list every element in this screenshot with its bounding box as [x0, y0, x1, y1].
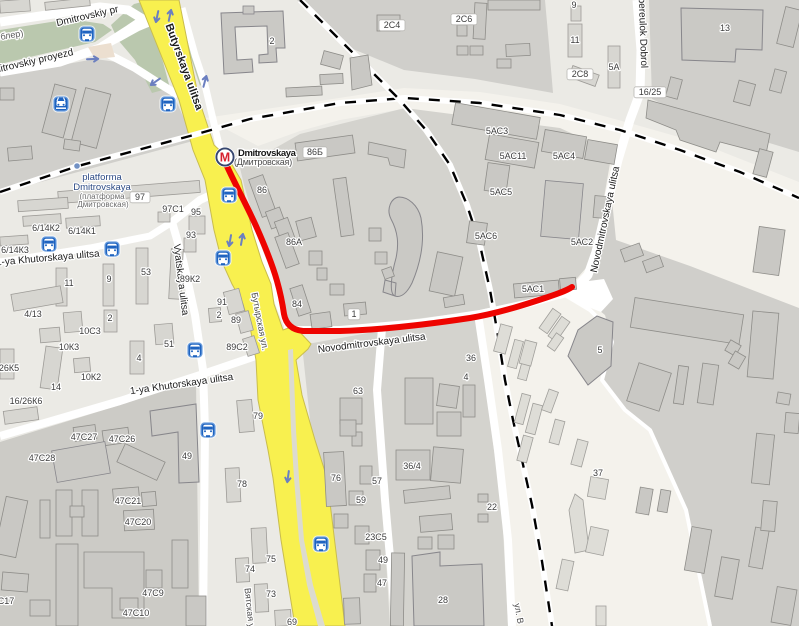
svg-text:97: 97 — [135, 192, 145, 202]
svg-text:47С26: 47С26 — [109, 434, 136, 444]
svg-text:47С27: 47С27 — [71, 432, 98, 442]
svg-text:4: 4 — [463, 372, 468, 382]
svg-text:53: 53 — [141, 267, 151, 277]
svg-text:28: 28 — [438, 595, 448, 605]
svg-text:47С9: 47С9 — [142, 588, 164, 598]
svg-text:47С21: 47С21 — [115, 496, 142, 506]
svg-text:76: 76 — [331, 473, 341, 483]
svg-text:47: 47 — [377, 578, 387, 588]
svg-text:2: 2 — [269, 36, 274, 46]
svg-text:5АС1: 5АС1 — [522, 284, 544, 294]
svg-text:22: 22 — [487, 502, 497, 512]
svg-text:M: M — [220, 150, 230, 164]
svg-text:16/26К6: 16/26К6 — [10, 396, 43, 406]
svg-text:89С2: 89С2 — [226, 342, 248, 352]
svg-text:79: 79 — [253, 411, 263, 421]
svg-text:47С10: 47С10 — [123, 608, 150, 618]
svg-text:57: 57 — [372, 476, 382, 486]
svg-text:9: 9 — [571, 0, 576, 10]
svg-text:86Б: 86Б — [307, 147, 323, 157]
svg-text:5АС2: 5АС2 — [571, 237, 593, 247]
svg-text:93: 93 — [186, 230, 196, 240]
svg-text:47С28: 47С28 — [29, 453, 56, 463]
svg-text:69: 69 — [287, 617, 297, 626]
svg-text:51: 51 — [164, 339, 174, 349]
svg-text:5АС11: 5АС11 — [500, 151, 527, 161]
svg-text:6/14К3: 6/14К3 — [1, 245, 29, 255]
svg-text:97С1: 97С1 — [162, 204, 184, 214]
svg-text:5АС3: 5АС3 — [486, 126, 508, 136]
svg-text:86: 86 — [257, 185, 267, 195]
svg-text:5: 5 — [597, 345, 602, 355]
svg-text:5АС6: 5АС6 — [475, 231, 497, 241]
svg-text:36: 36 — [466, 353, 476, 363]
svg-text:6/14К1: 6/14К1 — [68, 226, 96, 236]
svg-text:59: 59 — [356, 495, 366, 505]
svg-text:14: 14 — [51, 382, 61, 392]
svg-text:63: 63 — [353, 386, 363, 396]
svg-text:10К2: 10К2 — [81, 372, 101, 382]
svg-text:Дмитровская): Дмитровская) — [77, 200, 129, 209]
svg-text:36/4: 36/4 — [403, 461, 421, 471]
svg-text:75: 75 — [266, 554, 276, 564]
svg-text:89К2: 89К2 — [180, 274, 200, 284]
svg-text:23С5: 23С5 — [365, 532, 387, 542]
svg-text:С17: С17 — [0, 596, 14, 606]
svg-text:10К3: 10К3 — [59, 342, 79, 352]
svg-text:84: 84 — [292, 299, 302, 309]
svg-text:5A: 5A — [608, 62, 619, 72]
svg-text:11: 11 — [570, 35, 579, 45]
svg-text:2С8: 2С8 — [572, 69, 589, 79]
svg-text:47С20: 47С20 — [125, 517, 152, 527]
svg-text:1: 1 — [351, 309, 356, 319]
svg-text:89: 89 — [231, 315, 241, 325]
svg-text:91: 91 — [217, 297, 227, 307]
svg-text:10С3: 10С3 — [79, 326, 101, 336]
svg-text:2: 2 — [216, 310, 221, 320]
svg-text:37: 37 — [593, 468, 603, 478]
svg-text:16/25: 16/25 — [639, 87, 662, 97]
svg-text:2: 2 — [107, 313, 112, 323]
svg-text:4/13: 4/13 — [24, 309, 42, 319]
svg-text:9: 9 — [106, 274, 111, 284]
svg-text:2С4: 2С4 — [384, 20, 401, 30]
svg-text:11: 11 — [64, 278, 73, 288]
svg-text:4: 4 — [136, 353, 141, 363]
svg-text:78: 78 — [237, 479, 247, 489]
svg-text:5АС4: 5АС4 — [553, 151, 575, 161]
svg-text:(Дмитровская): (Дмитровская) — [234, 157, 292, 167]
svg-text:95: 95 — [191, 207, 201, 217]
svg-text:74: 74 — [245, 564, 255, 574]
svg-text:73: 73 — [266, 589, 276, 599]
svg-text:49: 49 — [378, 555, 388, 565]
svg-text:5АС5: 5АС5 — [490, 187, 512, 197]
svg-text:26К5: 26К5 — [0, 363, 19, 373]
svg-text:13: 13 — [720, 23, 730, 33]
svg-text:6/14К2: 6/14К2 — [32, 223, 60, 233]
svg-text:49: 49 — [182, 451, 192, 461]
svg-text:2С6: 2С6 — [456, 14, 473, 24]
svg-text:86А: 86А — [286, 237, 302, 247]
